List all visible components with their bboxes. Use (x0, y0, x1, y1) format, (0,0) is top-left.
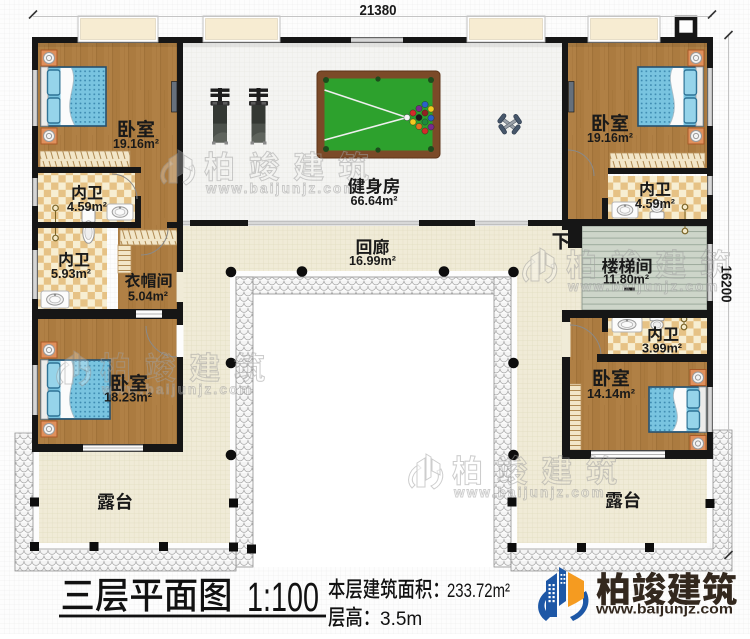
svg-text:11.80m²: 11.80m² (603, 273, 649, 287)
svg-text:1:100: 1:100 (247, 574, 319, 620)
svg-text:www.baijunjz.com: www.baijunjz.com (595, 602, 733, 617)
svg-text:19.16m²: 19.16m² (113, 137, 159, 151)
svg-text:3.5m: 3.5m (380, 609, 422, 630)
svg-text:5.04m²: 5.04m² (128, 290, 168, 304)
svg-text:16.99m²: 16.99m² (349, 254, 396, 268)
svg-text:5.93m²: 5.93m² (51, 267, 91, 281)
svg-text:4.59m²: 4.59m² (635, 197, 675, 211)
svg-text:21380: 21380 (360, 3, 397, 19)
svg-text:19.16m²: 19.16m² (587, 131, 633, 145)
svg-text:18.23m²: 18.23m² (104, 391, 152, 405)
svg-text:4.59m²: 4.59m² (67, 200, 107, 214)
svg-text:66.64m²: 66.64m² (351, 194, 398, 208)
svg-text:3.99m²: 3.99m² (642, 342, 682, 356)
svg-text:14.14m²: 14.14m² (587, 387, 635, 401)
svg-text:16200: 16200 (717, 266, 733, 303)
svg-text:233.72m²: 233.72m² (447, 581, 510, 602)
